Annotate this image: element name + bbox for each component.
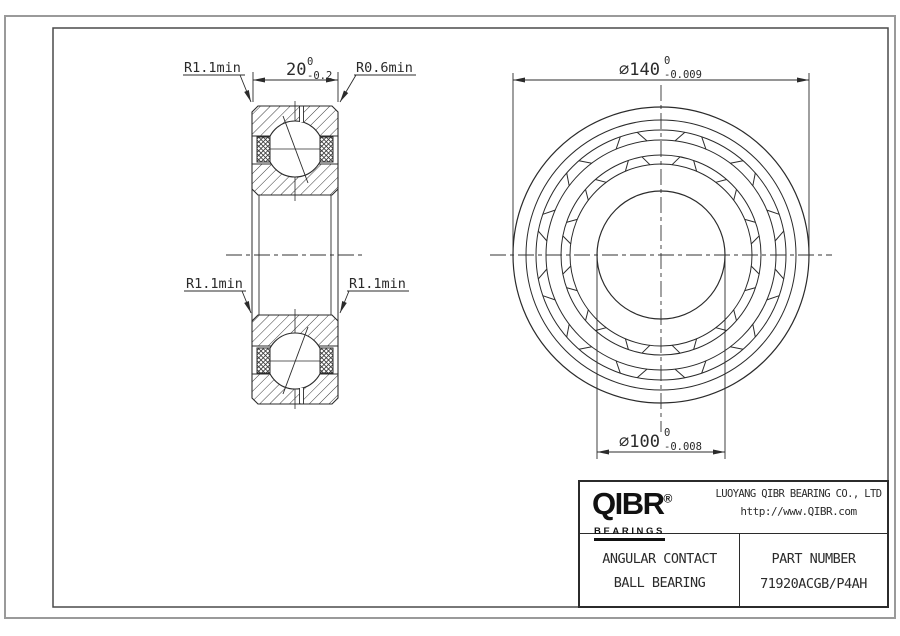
cage-pocket-line xyxy=(730,347,743,350)
cage-bottom-left xyxy=(257,348,270,373)
cage-pocket-line xyxy=(567,173,570,186)
cage-pocket-line xyxy=(625,339,628,350)
cage-pocket-line xyxy=(579,347,592,350)
cage-pocket-line xyxy=(586,310,589,321)
cage-pocket-line xyxy=(642,157,650,165)
cage-pocket-line xyxy=(538,231,547,241)
dim-width-nominal: 20 xyxy=(286,60,306,80)
logo-wordmark: QIBR® xyxy=(592,486,672,521)
cage-pocket-line xyxy=(637,132,647,141)
cage-pocket-line xyxy=(694,160,697,171)
label-r-bottom-left: R1.1min xyxy=(186,276,243,292)
dim-od-lower: -0.009 xyxy=(664,69,702,81)
cage-top-right xyxy=(320,137,333,162)
section-view xyxy=(226,101,364,409)
company-url: http://www.QIBR.com xyxy=(710,505,887,518)
cage-pocket-line xyxy=(672,345,680,353)
product-line1: ANGULAR CONTACT xyxy=(580,551,739,567)
cage-pocket-line xyxy=(625,160,628,171)
cage-pocket-line xyxy=(538,269,547,279)
cage-pocket-line xyxy=(775,231,784,241)
dim-bore-upper: 0 xyxy=(664,427,670,439)
dim-od-upper: 0 xyxy=(664,55,670,67)
cage-pocket-line xyxy=(642,345,650,353)
cage-pocket-line xyxy=(775,269,784,279)
label-r-top-left: R1.1min xyxy=(184,60,241,76)
cage-pocket-line xyxy=(751,236,759,244)
dim-width: 20 0 -0.2 xyxy=(253,56,338,102)
cage-pocket-line xyxy=(672,157,680,165)
cage-pocket-line xyxy=(753,173,756,186)
cage-pocket-line xyxy=(753,324,756,337)
drawing-sheet: 20 0 -0.2 R1.1min R0.6min R1.1min R1.1mi… xyxy=(0,0,900,636)
cage-pocket-line xyxy=(579,161,592,164)
cage-pocket-line xyxy=(734,189,737,200)
company-logo: QIBR® BEARINGS xyxy=(580,482,710,533)
dim-od-nominal: ∅140 xyxy=(619,60,660,80)
cage-bottom-right xyxy=(320,348,333,373)
cage-pocket-line xyxy=(586,189,589,200)
title-block: QIBR® BEARINGS LUOYANG QIBR BEARING CO.,… xyxy=(578,480,889,608)
dim-bore-lower: -0.008 xyxy=(664,441,702,453)
company-name: LUOYANG QIBR BEARING CO., LTD xyxy=(710,488,887,500)
cage-top-left xyxy=(257,137,270,162)
cage-pocket-line xyxy=(567,324,570,337)
part-number-label: PART NUMBER xyxy=(740,551,887,567)
cage-pocket-line xyxy=(563,266,571,274)
front-view xyxy=(490,85,832,432)
title-block-body: ANGULAR CONTACT BALL BEARING PART NUMBER… xyxy=(580,534,887,608)
product-line2: BALL BEARING xyxy=(580,575,739,591)
part-number-value: 71920ACGB/P4AH xyxy=(740,576,887,592)
cage-pocket-line xyxy=(694,339,697,350)
cage-pocket-line xyxy=(637,369,647,378)
cage-pocket-line xyxy=(675,369,685,378)
cage-pocket-line xyxy=(563,236,571,244)
dim-width-upper: 0 xyxy=(307,56,313,68)
dim-width-lower: -0.2 xyxy=(307,70,332,82)
cage-pocket-line xyxy=(566,288,577,291)
cage-pocket-line xyxy=(745,288,756,291)
company-info: LUOYANG QIBR BEARING CO., LTD http://www… xyxy=(710,482,887,533)
cage-pocket-line xyxy=(730,161,743,164)
part-number-cell: PART NUMBER 71920ACGB/P4AH xyxy=(740,534,887,608)
label-r-bottom-right: R1.1min xyxy=(349,276,406,292)
label-r-top-right: R0.6min xyxy=(356,60,413,76)
registered-mark-icon: ® xyxy=(664,492,673,506)
dim-bore-nominal: ∅100 xyxy=(619,432,660,452)
cage-pocket-line xyxy=(745,219,756,222)
cage-pocket-line xyxy=(566,219,577,222)
cage-pocket-line xyxy=(716,180,727,183)
cage-pocket-line xyxy=(595,180,606,183)
title-block-header: QIBR® BEARINGS LUOYANG QIBR BEARING CO.,… xyxy=(580,482,887,534)
cage-pocket-line xyxy=(734,310,737,321)
product-name-cell: ANGULAR CONTACT BALL BEARING xyxy=(580,534,740,608)
cage-pocket-line xyxy=(751,266,759,274)
cage-pocket-line xyxy=(675,132,685,141)
